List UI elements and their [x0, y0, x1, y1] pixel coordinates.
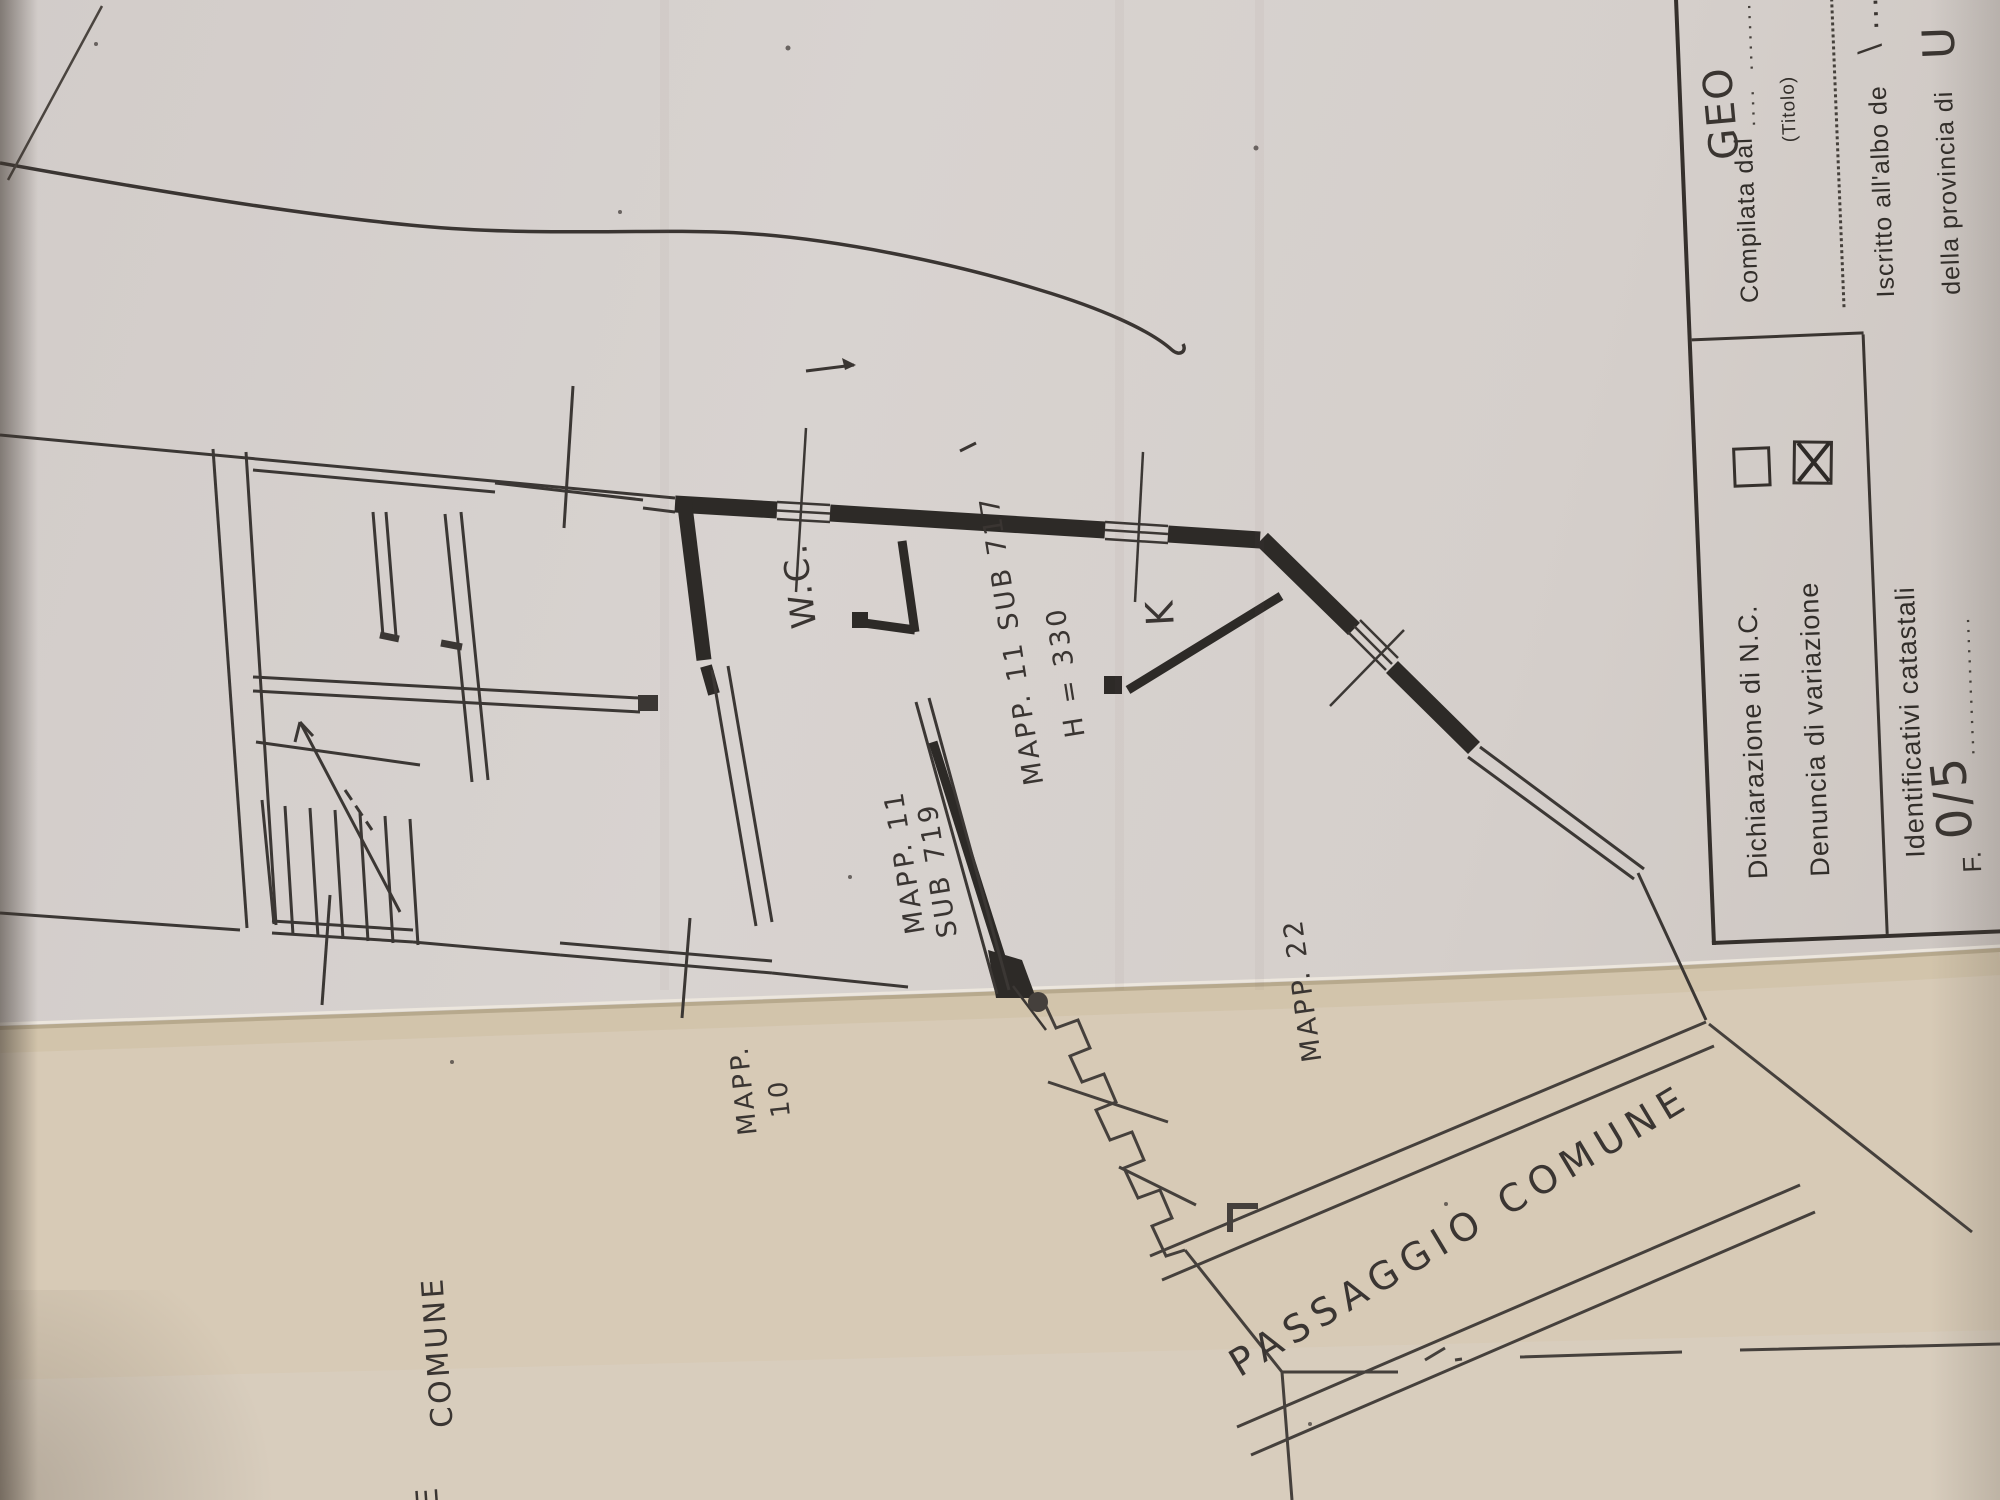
photographed-cadastral-document: W.C. MAPP. 11 SUB 717 H = 330 K MAPP. 11…: [0, 0, 2000, 1500]
sub719-boundaries: [712, 666, 1706, 1020]
iscritto-label: Iscritto all'albo de: [1864, 85, 1901, 298]
door-jamb-block: [638, 695, 658, 711]
iscritto-value-handwritten[interactable]: \ .....: [1849, 0, 1887, 55]
compilata-value-handwritten[interactable]: GEO: [1694, 64, 1748, 162]
passage-label-comune-partial: E: [410, 1484, 446, 1500]
freehand-curve: [0, 163, 1184, 451]
dichiarazione-checkbox[interactable]: [1732, 446, 1772, 487]
scan-streak: [1115, 0, 1124, 990]
header-dotted-rule: [1830, 0, 1846, 307]
staircase: [256, 722, 420, 945]
denuncia-checkbox-checked[interactable]: [1792, 440, 1833, 484]
form-row-divider: [1862, 334, 1889, 934]
compilata-dots-post: .......: [1730, 0, 1759, 71]
dichiarazione-label: Dichiarazione di N.C.: [1732, 604, 1774, 880]
corner-shadow: [0, 1290, 330, 1500]
denuncia-label: Denuncia di variazione: [1794, 581, 1837, 877]
form-cell-divider: [1692, 331, 1864, 341]
wc-door-jamb: [852, 612, 868, 628]
compilata-label: Compilata dal: [1730, 137, 1766, 304]
left-building-walls: [0, 386, 908, 1018]
scan-streak: [660, 0, 669, 990]
scan-streak: [1255, 0, 1264, 990]
small-arrowhead: [842, 358, 856, 370]
titolo-label: (Titolo): [1777, 75, 1802, 142]
boundary-node: [1028, 992, 1048, 1012]
left-edge-shadow: [0, 0, 38, 1500]
room-label-k: K: [1137, 597, 1182, 627]
right-edge-shadow: [1930, 0, 2000, 1500]
parcel-label-10: 10: [763, 1077, 797, 1119]
